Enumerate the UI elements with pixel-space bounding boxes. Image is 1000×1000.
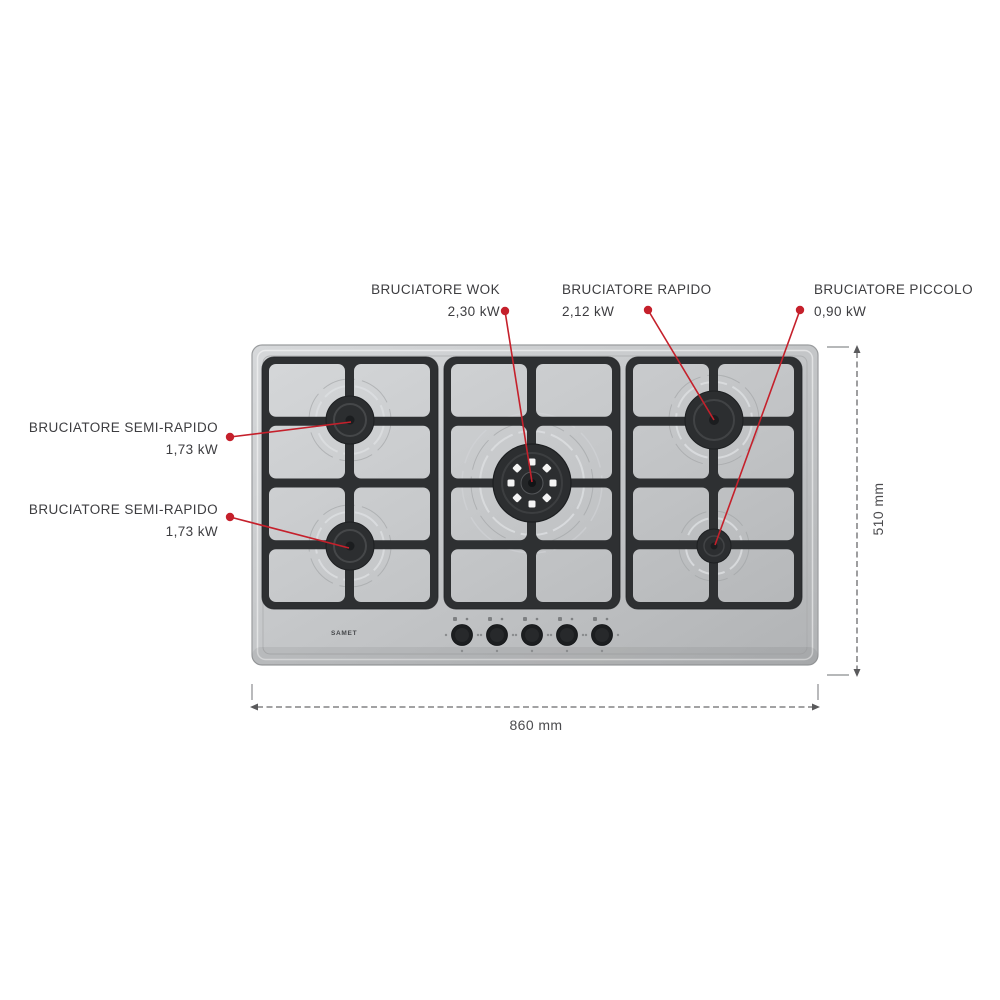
brand-logo: SAMET — [331, 630, 357, 637]
dimension-width-label: 860 mm — [486, 717, 586, 733]
dimension-height-label: 510 mm — [868, 459, 888, 559]
hob-spec-diagram: BRUCIATORE WOK 2,30 kW BRUCIATORE RAPIDO… — [0, 0, 1000, 1000]
annotation-wok-name: BRUCIATORE WOK — [371, 279, 500, 301]
annotation-rapido-power: 2,12 kW — [562, 301, 712, 323]
leader-dot-semi-rapido-bottom — [226, 513, 234, 521]
dimension-width — [250, 684, 820, 711]
hob-front-edge — [252, 647, 818, 665]
extension-ticks-width — [252, 684, 818, 700]
annotation-wok-power: 2,30 kW — [371, 301, 500, 323]
burner-piccolo — [697, 529, 731, 563]
arrow-down-icon — [854, 669, 861, 677]
annotation-wok: BRUCIATORE WOK 2,30 kW — [371, 279, 500, 323]
annotation-semi-rapido-bottom: BRUCIATORE SEMI-RAPIDO 1,73 kW — [29, 499, 218, 543]
annotation-piccolo-power: 0,90 kW — [814, 301, 973, 323]
arrow-up-icon — [854, 345, 861, 353]
leader-dot-semi-rapido-top — [226, 433, 234, 441]
annotation-semi-rapido-top: BRUCIATORE SEMI-RAPIDO 1,73 kW — [29, 417, 218, 461]
arrow-left-icon — [250, 704, 258, 711]
burner-wok — [493, 444, 571, 522]
annotation-semi-rapido-top-name: BRUCIATORE SEMI-RAPIDO — [29, 417, 218, 439]
annotation-semi-rapido-bottom-power: 1,73 kW — [29, 521, 218, 543]
dimension-height — [827, 345, 861, 677]
grate-left — [262, 357, 438, 609]
leader-dot-wok — [501, 307, 509, 315]
annotation-piccolo: BRUCIATORE PICCOLO 0,90 kW — [814, 279, 973, 323]
leader-dot-piccolo — [796, 306, 804, 314]
arrow-right-icon — [812, 704, 820, 711]
annotation-rapido: BRUCIATORE RAPIDO 2,12 kW — [562, 279, 712, 323]
annotation-piccolo-name: BRUCIATORE PICCOLO — [814, 279, 973, 301]
burner-semi-rapido-top-left — [326, 396, 374, 444]
burner-semi-rapido-bottom-left — [326, 522, 374, 570]
annotation-semi-rapido-bottom-name: BRUCIATORE SEMI-RAPIDO — [29, 499, 218, 521]
extension-ticks-height — [827, 347, 849, 675]
annotation-rapido-name: BRUCIATORE RAPIDO — [562, 279, 712, 301]
annotation-semi-rapido-top-power: 1,73 kW — [29, 439, 218, 461]
